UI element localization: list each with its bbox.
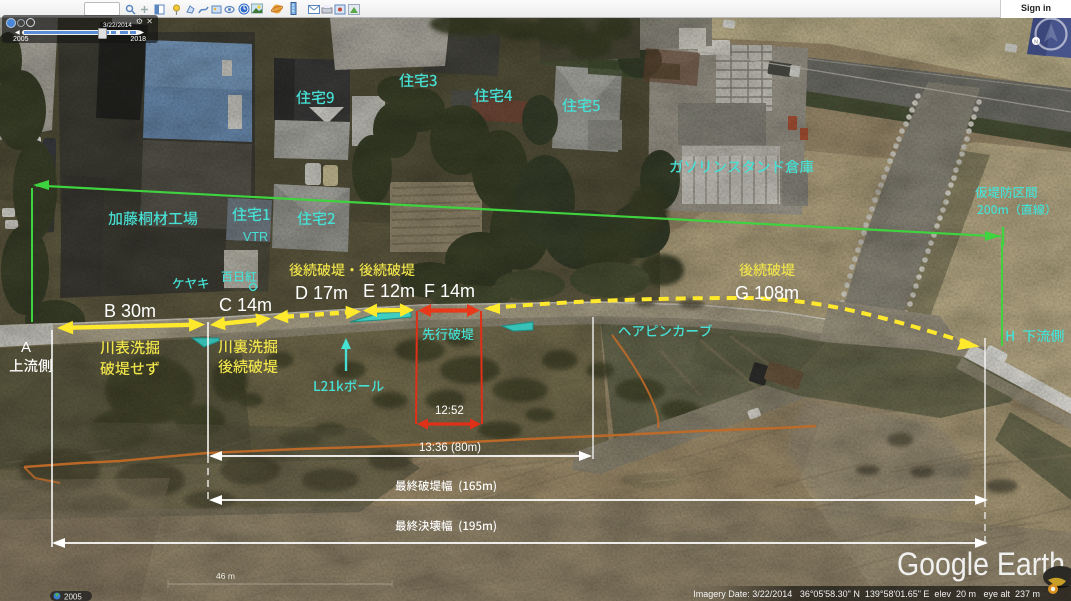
svg-text:G 108m: G 108m: [735, 283, 799, 303]
svg-text:F 14m: F 14m: [424, 281, 475, 301]
svg-text:2005: 2005: [64, 593, 82, 601]
svg-text:C 14m: C 14m: [219, 295, 272, 315]
svg-text:VTR: VTR: [243, 230, 268, 244]
svg-text:46 m: 46 m: [216, 571, 235, 581]
svg-text:13:36 (80m): 13:36 (80m): [419, 442, 481, 454]
svg-text:E 12m: E 12m: [363, 281, 415, 301]
svg-text:Google Earth: Google Earth: [897, 546, 1065, 582]
svg-text:N: N: [1034, 40, 1038, 46]
svg-text:Imagery Date: 3/22/2014 36°0: Imagery Date: 3/22/2014 36°05'58.30" N 1…: [693, 589, 1040, 599]
svg-text:B 30m: B 30m: [104, 301, 156, 321]
svg-text:12:52: 12:52: [435, 405, 464, 417]
svg-text:A: A: [21, 339, 31, 356]
svg-text:D 17m: D 17m: [295, 283, 348, 303]
